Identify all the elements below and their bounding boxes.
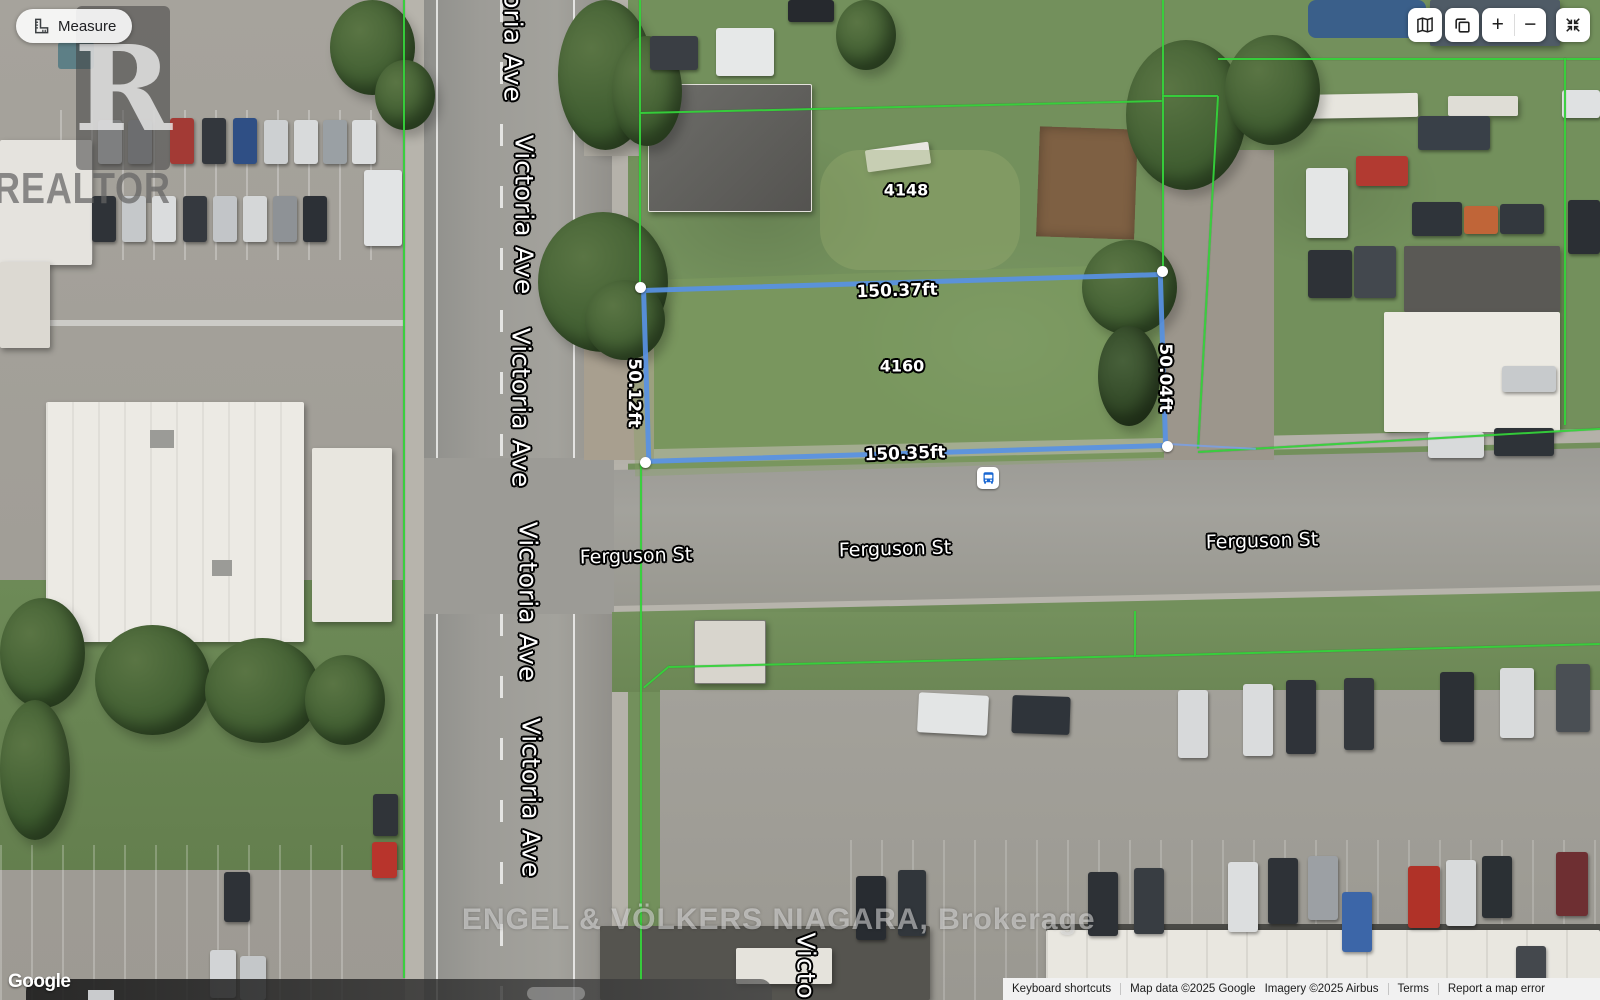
measurement-vertex[interactable] <box>1157 266 1168 277</box>
car <box>1500 204 1544 234</box>
building-roof <box>1404 246 1560 312</box>
mulch-patch <box>1036 126 1138 239</box>
street-label-ferguson-st: Ferguson St <box>580 544 693 569</box>
measurement-vertex[interactable] <box>640 457 651 468</box>
car <box>183 196 207 242</box>
keyboard-shortcuts-link[interactable]: Keyboard shortcuts <box>1003 983 1120 995</box>
car <box>650 36 698 70</box>
measurement-label-top: 150.37ft <box>856 280 938 303</box>
street-label-victoria-ave: Victo <box>792 932 821 999</box>
building-roof <box>0 262 50 348</box>
lane-line <box>500 614 503 1000</box>
tree-canopy <box>205 638 320 743</box>
measure-button[interactable]: Measure <box>16 9 132 43</box>
car <box>1440 672 1474 742</box>
parcel-boundary-line <box>1162 95 1218 97</box>
car <box>1482 856 1512 918</box>
car <box>224 872 250 922</box>
parcel-boundary-line <box>639 0 641 287</box>
car <box>323 120 347 164</box>
car <box>1502 366 1556 392</box>
building-roof <box>694 620 766 684</box>
google-logo[interactable]: Google <box>8 971 70 993</box>
rooftop-unit <box>150 430 174 448</box>
car <box>373 794 398 836</box>
car <box>243 196 267 242</box>
panel-thumbnail[interactable] <box>88 990 114 1000</box>
zoom-out-button[interactable]: − <box>1515 8 1547 42</box>
street-label-ferguson-st: Ferguson St <box>1206 529 1319 554</box>
measure-button-label: Measure <box>58 18 116 35</box>
rooftop-unit <box>212 560 232 576</box>
parcel-boundary-line <box>1564 58 1566 425</box>
imagery-text: Imagery ©2025 Airbus <box>1265 983 1388 995</box>
parcel-boundary-line <box>1134 611 1136 657</box>
car <box>1308 250 1352 298</box>
address-label-4160: 4160 <box>880 357 925 376</box>
map-canvas[interactable]: 150.37ft 150.35ft 50.12ft 50.04ft 4148 4… <box>0 0 1600 1000</box>
bottom-panel <box>26 979 772 1000</box>
tree-canopy <box>0 700 70 840</box>
tree-canopy <box>836 0 896 70</box>
car <box>788 0 834 22</box>
car <box>170 118 194 164</box>
car <box>352 120 376 164</box>
car <box>1408 866 1440 928</box>
brokerage-watermark: ENGEL & VÖLKERS NIAGARA, Brokerage <box>462 903 1096 937</box>
zoom-in-button[interactable]: + <box>1482 8 1514 42</box>
map-type-button[interactable] <box>1408 8 1442 42</box>
street-label-victoria-ave: oria Ave <box>499 0 528 103</box>
tree-canopy <box>305 655 385 745</box>
car <box>1286 680 1316 754</box>
street-label-ferguson-st: Ferguson St <box>839 537 952 562</box>
building-roof <box>46 402 304 642</box>
car <box>1500 668 1534 738</box>
car <box>1306 168 1348 238</box>
report-error-link[interactable]: Report a map error <box>1438 983 1554 995</box>
car <box>1556 852 1588 916</box>
address-label-4148: 4148 <box>884 181 929 200</box>
car <box>1562 90 1600 118</box>
terms-link[interactable]: Terms <box>1388 983 1438 995</box>
worn-grass <box>820 150 1020 270</box>
layers-icon <box>1453 16 1472 35</box>
box-truck <box>364 170 402 246</box>
ruler-icon <box>32 18 49 35</box>
measurement-label-left: 50.12ft <box>624 358 645 427</box>
car <box>202 118 226 164</box>
tree-canopy <box>95 625 210 735</box>
gravel-lot <box>1164 150 1274 460</box>
car <box>1134 868 1164 934</box>
car <box>273 196 297 242</box>
layers-button[interactable] <box>1445 8 1479 42</box>
car <box>1568 200 1600 254</box>
car <box>1268 858 1298 924</box>
attribution-bar: Keyboard shortcuts Map data ©2025 Google… <box>1003 978 1600 1000</box>
street-label-victoria-ave: Victoria Ave <box>517 718 546 879</box>
car <box>1243 684 1273 756</box>
realtor-wordmark: REALTOR <box>0 164 171 214</box>
car <box>303 196 327 242</box>
building-roof <box>312 448 392 622</box>
car <box>1412 202 1462 236</box>
collapse-icon <box>1563 15 1583 35</box>
car <box>1011 695 1070 735</box>
street-label-victoria-ave: Victoria Ave <box>514 522 543 683</box>
measurement-vertex[interactable] <box>1162 441 1173 452</box>
measurement-vertex[interactable] <box>635 282 646 293</box>
car <box>1308 856 1338 920</box>
car <box>372 842 397 878</box>
panel-button[interactable] <box>527 987 585 1000</box>
map-icon <box>1415 15 1435 35</box>
car <box>264 120 288 164</box>
car <box>1228 862 1258 932</box>
car <box>1446 860 1476 926</box>
car <box>1342 892 1372 952</box>
lot-line <box>0 320 405 326</box>
zoom-controls: + − <box>1482 8 1546 42</box>
bus-stop-icon[interactable] <box>977 467 999 489</box>
retaining-wall <box>1448 96 1518 116</box>
sidewalk <box>405 0 425 1000</box>
bus-glyph <box>981 471 996 486</box>
tree-canopy <box>1126 40 1246 190</box>
parcel-boundary-line <box>1218 58 1600 60</box>
pickup-truck <box>917 692 989 736</box>
car <box>1418 116 1490 150</box>
car <box>1344 678 1374 750</box>
car <box>1556 664 1590 732</box>
lane-line <box>573 614 575 1000</box>
street-label-victoria-ave: Victoria Ave <box>510 135 539 296</box>
collapse-button[interactable] <box>1556 8 1590 42</box>
tree-canopy <box>1225 35 1320 145</box>
car <box>1356 156 1408 186</box>
car <box>213 196 237 242</box>
measurement-label-right: 50.04ft <box>1155 343 1175 412</box>
parcel-boundary-line <box>403 0 405 978</box>
trailer <box>716 28 774 76</box>
car <box>233 118 257 164</box>
car <box>1464 206 1498 234</box>
parcel-boundary-line <box>1162 0 1164 271</box>
tree-canopy <box>375 60 435 130</box>
car <box>1354 246 1396 298</box>
tree-canopy <box>0 598 85 708</box>
car <box>1178 690 1208 758</box>
street-label-victoria-ave: Victoria Ave <box>507 328 536 489</box>
measurement-label-bottom: 150.35ft <box>864 443 946 466</box>
car <box>294 120 318 164</box>
map-data-text: Map data ©2025 Google <box>1120 983 1264 995</box>
